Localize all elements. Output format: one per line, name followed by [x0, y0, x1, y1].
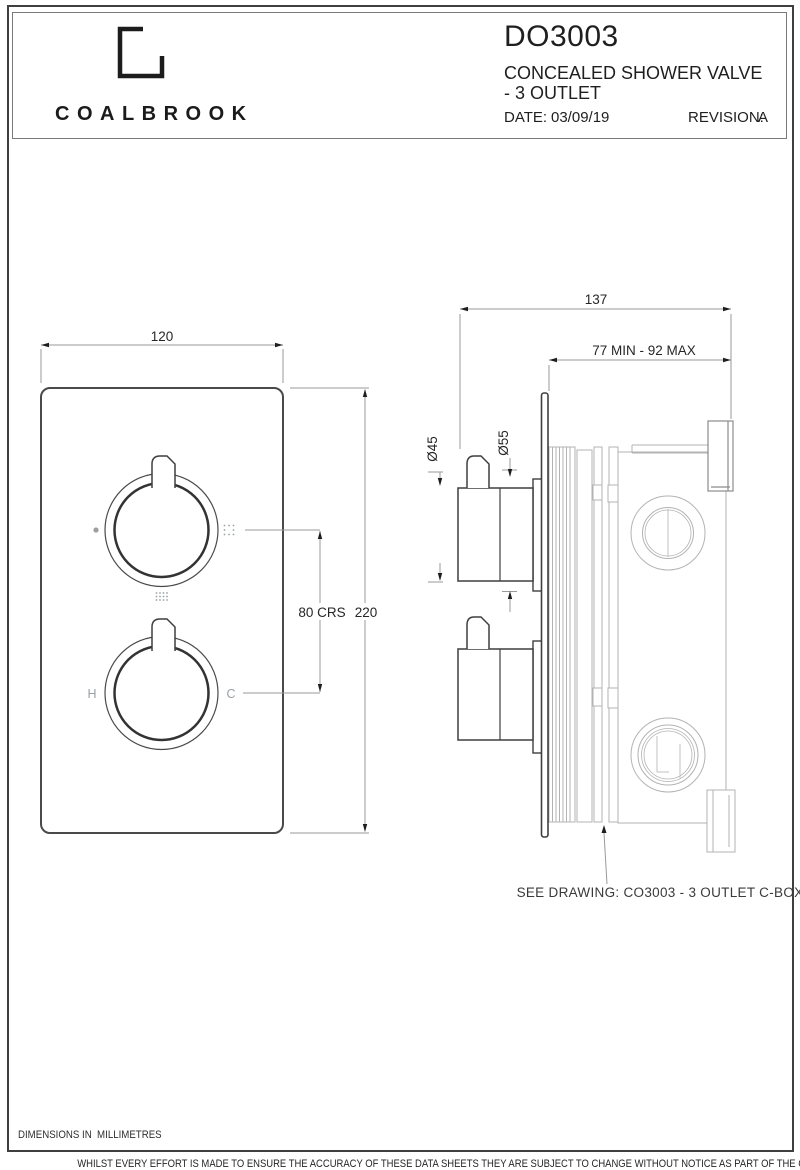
arrowhead [318, 684, 322, 692]
arrowhead [549, 358, 557, 362]
dim-knob-diameter [428, 472, 443, 582]
arrowhead [508, 469, 512, 477]
dim-120-text: 120 [151, 329, 174, 344]
lower-knob-side [458, 617, 533, 740]
faceplate-front [41, 388, 283, 833]
outlet-elbow-bracket [708, 421, 733, 491]
disclaimer: WHILST EVERY EFFORT IS MADE TO ENSURE TH… [0, 1154, 800, 1170]
arrowhead [41, 343, 49, 347]
dim-80crs-text: 80 CRS [298, 605, 345, 620]
dim-knob-diameter-text: Ø45 [425, 436, 440, 462]
arrowhead [602, 825, 607, 833]
arrowhead [363, 389, 367, 397]
dim-220-text: 220 [355, 605, 378, 620]
arrowhead [318, 531, 322, 539]
disclaimer-text: WHILST EVERY EFFORT IS MADE TO ENSURE TH… [77, 1158, 800, 1170]
hot-label: H [87, 687, 96, 701]
dim-137-text: 137 [585, 292, 608, 307]
upper-knob-side [458, 456, 533, 581]
dim-projection-text: 77 MIN - 92 MAX [592, 343, 696, 358]
arrowhead [363, 824, 367, 832]
arrowhead [460, 307, 468, 311]
temperature-index-dot [93, 527, 98, 532]
see-drawing-note: SEE DRAWING: CO3003 - 3 OUTLET C-BOX [517, 885, 800, 900]
cold-label: C [226, 687, 235, 701]
arrowhead [438, 573, 442, 581]
dim-flange-diameter-text: Ø55 [496, 430, 511, 456]
note-leader-line [604, 833, 607, 884]
arrowhead [508, 591, 512, 599]
dim-120 [41, 345, 283, 383]
arrowhead [275, 343, 283, 347]
arrowhead [723, 358, 731, 362]
dim-137 [460, 309, 731, 449]
arrowhead [723, 307, 731, 311]
wall-plate-side [542, 393, 549, 837]
upper-port [631, 496, 705, 570]
side-view: 137 77 MIN - 92 MAX Ø45 [425, 292, 800, 900]
units-note: DIMENSIONS IN MILLIMETRES [18, 1129, 162, 1141]
dim-projection [549, 360, 731, 391]
datasheet-page: COALBROOK DO3003 CONCEALED SHOWER VALVE … [0, 0, 800, 1170]
technical-drawing: H C 120 220 [0, 0, 800, 1170]
arrowhead [438, 478, 442, 486]
front-view: H C 120 220 [41, 329, 381, 833]
